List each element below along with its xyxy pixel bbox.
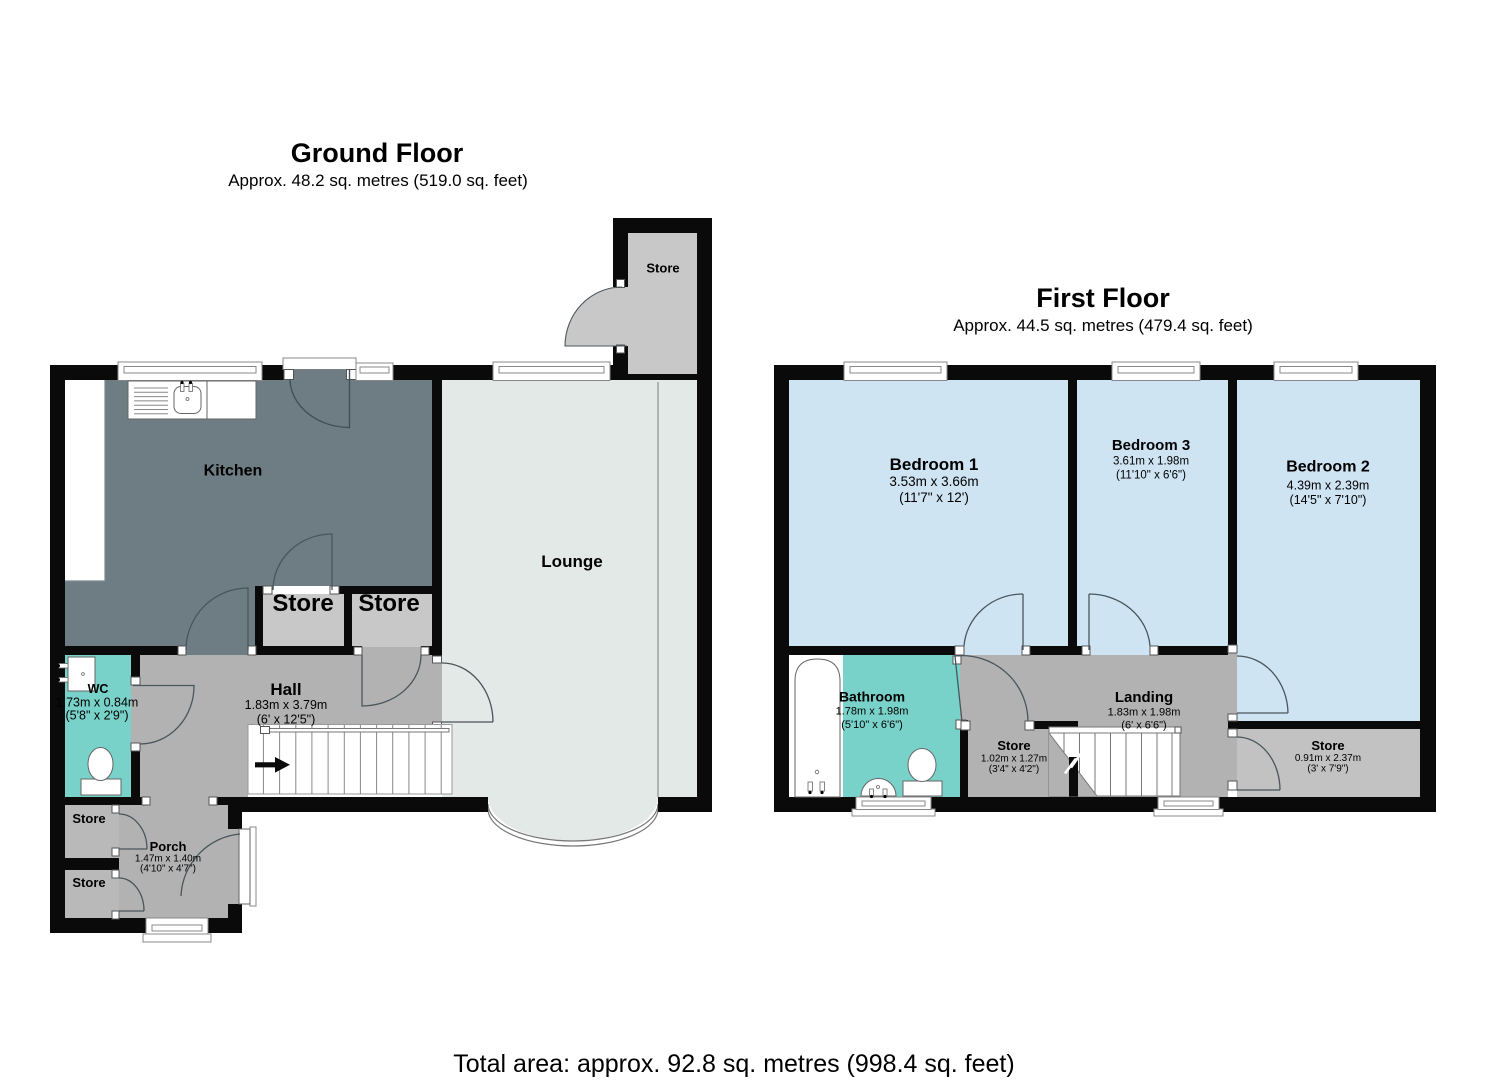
svg-text:Bedroom 1: Bedroom 1 [890,455,979,474]
svg-text:Porch: Porch [150,839,187,854]
svg-text:WC: WC [88,682,109,696]
svg-text:Store: Store [1311,738,1344,753]
svg-text:Bathroom: Bathroom [839,689,905,705]
svg-text:Landing: Landing [1115,689,1173,706]
svg-text:Approx. 44.5 sq. metres (479.4: Approx. 44.5 sq. metres (479.4 sq. feet) [953,316,1253,335]
svg-text:4.39m x 2.39m: 4.39m x 2.39m [1287,479,1370,493]
svg-text:(11'7" x 12'): (11'7" x 12') [899,490,969,505]
svg-text:1.83m x 3.79m: 1.83m x 3.79m [245,698,328,712]
svg-text:(6' x 12'5"): (6' x 12'5") [257,713,316,727]
svg-text:(6' x 6'6"): (6' x 6'6") [1121,720,1166,732]
svg-text:First Floor: First Floor [1036,283,1170,313]
svg-text:1.78m x 1.98m: 1.78m x 1.98m [836,706,909,718]
svg-text:(11'10" x 6'6"): (11'10" x 6'6") [1116,470,1186,482]
svg-text:Store: Store [358,590,419,617]
svg-text:Approx. 48.2 sq. metres (519.0: Approx. 48.2 sq. metres (519.0 sq. feet) [228,171,528,190]
svg-text:(14'5" x 7'10"): (14'5" x 7'10") [1290,493,1367,507]
svg-text:Store: Store [646,261,679,276]
svg-text:Hall: Hall [270,680,301,699]
svg-text:Store: Store [997,738,1030,753]
svg-text:1.83m x 1.98m: 1.83m x 1.98m [1108,707,1181,719]
svg-text:Total area: approx. 92.8 sq. m: Total area: approx. 92.8 sq. metres (998… [453,1050,1014,1078]
svg-text:3.61m x 1.98m: 3.61m x 1.98m [1113,456,1189,468]
svg-text:Bedroom 3: Bedroom 3 [1112,437,1190,454]
svg-text:Kitchen: Kitchen [204,463,263,480]
svg-text:(3' x 7'9"): (3' x 7'9") [1307,764,1348,775]
svg-text:Ground Floor: Ground Floor [291,138,464,168]
svg-text:Lounge: Lounge [541,552,602,571]
svg-text:0.91m x 2.37m: 0.91m x 2.37m [1295,753,1361,764]
svg-text:1.02m x 1.27m: 1.02m x 1.27m [981,754,1047,765]
svg-text:(3'4" x 4'2"): (3'4" x 4'2") [989,764,1039,775]
svg-text:(5'8" x 2'9"): (5'8" x 2'9") [66,709,129,723]
svg-text:Store: Store [72,811,105,826]
svg-text:Store: Store [272,590,333,617]
svg-text:(5'10" x 6'6"): (5'10" x 6'6") [841,719,903,731]
svg-text:3.53m x 3.66m: 3.53m x 3.66m [889,474,978,489]
svg-text:Bedroom 2: Bedroom 2 [1286,459,1370,476]
svg-text:1.73m x 0.84m: 1.73m x 0.84m [56,696,139,710]
svg-text:(4'10" x 4'7"): (4'10" x 4'7") [140,864,196,875]
svg-text:Store: Store [72,875,105,890]
